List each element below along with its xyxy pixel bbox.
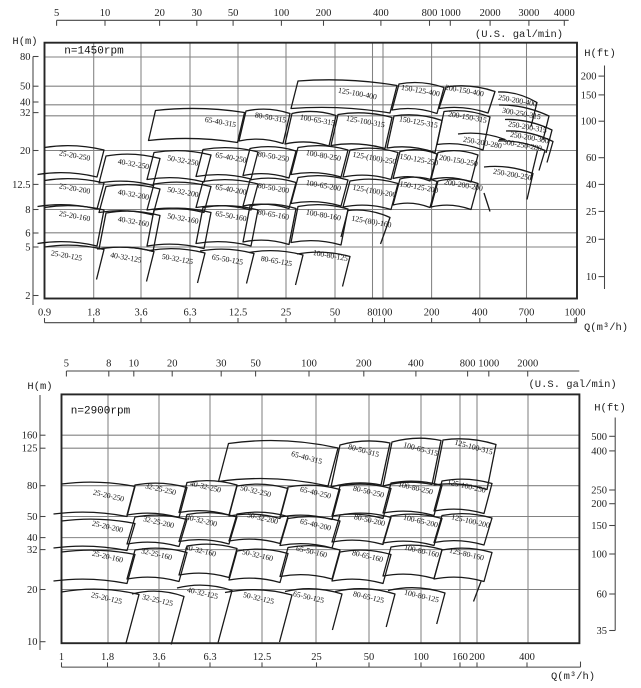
svg-text:700: 700 (519, 308, 535, 319)
svg-text:n=1450rpm: n=1450rpm (64, 46, 124, 58)
svg-text:8: 8 (106, 359, 111, 370)
svg-text:150: 150 (581, 90, 597, 101)
svg-text:400: 400 (373, 8, 389, 19)
svg-text:H(m): H(m) (12, 36, 37, 48)
svg-text:1000: 1000 (478, 359, 499, 370)
svg-text:400: 400 (408, 359, 424, 370)
svg-text:0.9: 0.9 (38, 308, 51, 319)
svg-text:200: 200 (316, 8, 332, 19)
svg-text:1000: 1000 (565, 308, 586, 319)
svg-text:H(ft): H(ft) (594, 403, 626, 415)
svg-text:10: 10 (100, 8, 111, 19)
svg-text:160: 160 (452, 652, 468, 663)
svg-text:H(ft): H(ft) (584, 48, 616, 60)
svg-text:(U.S. gal/min): (U.S. gal/min) (528, 379, 616, 391)
svg-text:5: 5 (54, 8, 59, 19)
svg-text:100: 100 (274, 8, 290, 19)
svg-text:35: 35 (597, 626, 608, 637)
svg-text:50: 50 (330, 308, 341, 319)
svg-text:6: 6 (25, 229, 30, 240)
svg-text:Q(m³/h): Q(m³/h) (551, 671, 595, 683)
svg-text:2000: 2000 (517, 359, 538, 370)
svg-text:5: 5 (64, 359, 69, 370)
svg-text:20: 20 (167, 359, 178, 370)
svg-text:50: 50 (228, 8, 239, 19)
svg-text:n=2900rpm: n=2900rpm (71, 406, 131, 418)
svg-text:30: 30 (192, 8, 203, 19)
svg-text:5: 5 (25, 243, 30, 254)
svg-text:40: 40 (27, 533, 38, 544)
svg-text:2: 2 (25, 291, 30, 302)
svg-text:200: 200 (424, 308, 440, 319)
svg-text:40: 40 (20, 98, 31, 109)
svg-text:12.5: 12.5 (12, 180, 30, 191)
svg-text:80: 80 (20, 52, 31, 63)
svg-text:100: 100 (377, 308, 393, 319)
svg-text:100: 100 (413, 652, 429, 663)
svg-text:80: 80 (27, 481, 38, 492)
svg-text:200: 200 (581, 72, 597, 83)
svg-text:10: 10 (586, 272, 597, 283)
svg-text:20: 20 (154, 8, 165, 19)
svg-text:3.6: 3.6 (152, 652, 165, 663)
svg-text:12.5: 12.5 (253, 652, 271, 663)
svg-text:50: 50 (364, 652, 375, 663)
svg-text:30: 30 (216, 359, 227, 370)
svg-text:100: 100 (581, 117, 597, 128)
svg-text:400: 400 (519, 652, 535, 663)
svg-text:10: 10 (129, 359, 140, 370)
svg-text:100: 100 (301, 359, 317, 370)
svg-text:400: 400 (591, 446, 607, 457)
svg-text:20: 20 (27, 585, 38, 596)
svg-text:32: 32 (27, 545, 38, 556)
svg-text:50: 50 (20, 82, 31, 93)
svg-text:60: 60 (597, 590, 608, 601)
svg-text:50: 50 (250, 359, 261, 370)
svg-text:160: 160 (22, 431, 38, 442)
svg-text:10: 10 (27, 637, 38, 648)
svg-text:25: 25 (281, 308, 292, 319)
svg-text:8: 8 (25, 205, 30, 216)
svg-text:6.3: 6.3 (183, 308, 196, 319)
svg-text:200: 200 (469, 652, 485, 663)
svg-text:250: 250 (591, 486, 607, 497)
svg-text:20: 20 (20, 146, 31, 157)
svg-text:40: 40 (586, 180, 597, 191)
svg-text:800: 800 (460, 359, 476, 370)
svg-text:150: 150 (591, 521, 607, 532)
svg-text:125: 125 (22, 444, 38, 455)
svg-text:25: 25 (586, 207, 597, 218)
svg-text:12.5: 12.5 (229, 308, 247, 319)
svg-text:1: 1 (59, 652, 64, 663)
svg-text:1.8: 1.8 (87, 308, 100, 319)
svg-text:1000: 1000 (440, 8, 461, 19)
svg-text:500: 500 (591, 432, 607, 443)
svg-text:4000: 4000 (554, 8, 575, 19)
svg-text:H(m): H(m) (27, 381, 52, 393)
svg-text:1.8: 1.8 (101, 652, 114, 663)
svg-text:2000: 2000 (480, 8, 501, 19)
svg-text:400: 400 (472, 308, 488, 319)
svg-text:60: 60 (586, 153, 597, 164)
svg-text:3.6: 3.6 (134, 308, 147, 319)
svg-text:Q(m³/h): Q(m³/h) (584, 322, 628, 334)
svg-text:(U.S. gal/min): (U.S. gal/min) (475, 29, 563, 41)
svg-text:50: 50 (27, 512, 38, 523)
svg-text:800: 800 (422, 8, 438, 19)
svg-text:32: 32 (20, 108, 31, 119)
svg-text:200: 200 (591, 499, 607, 510)
svg-text:100: 100 (591, 550, 607, 561)
svg-text:3000: 3000 (518, 8, 539, 19)
svg-text:200: 200 (356, 359, 372, 370)
svg-text:6.3: 6.3 (203, 652, 216, 663)
svg-text:25: 25 (311, 652, 322, 663)
svg-text:20: 20 (586, 235, 597, 246)
